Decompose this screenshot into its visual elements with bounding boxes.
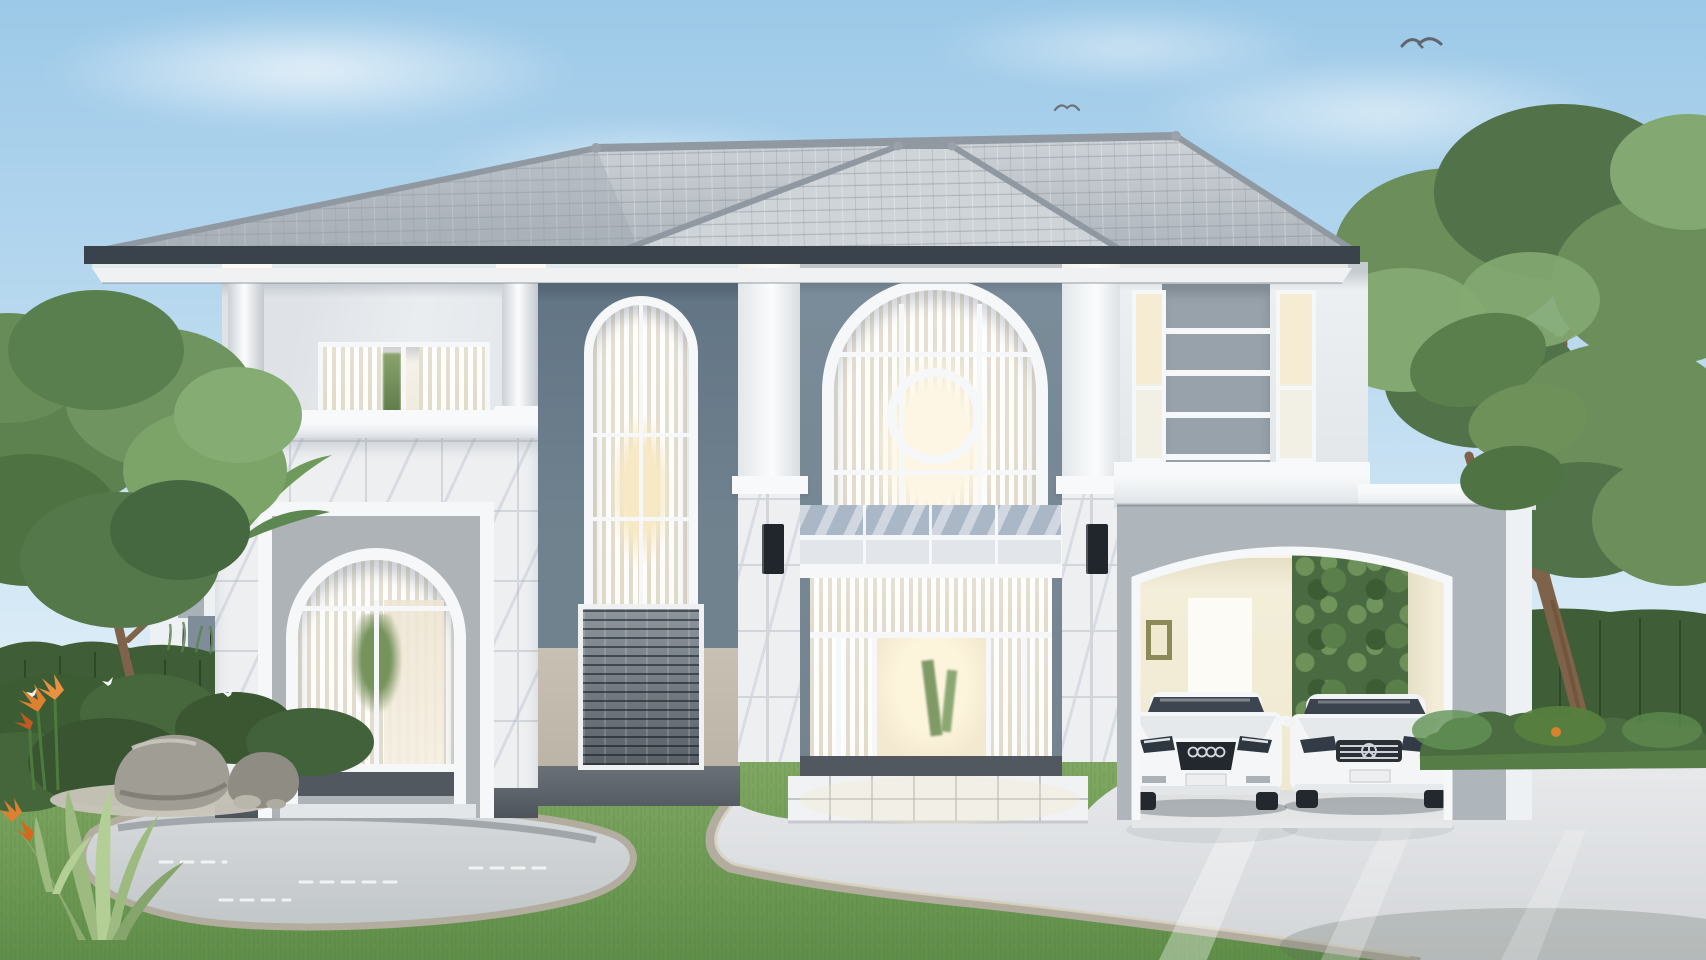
bushes-right bbox=[1412, 706, 1706, 770]
entry-doors-mullion bbox=[836, 638, 841, 756]
roof bbox=[60, 100, 1380, 300]
narrow-window-bar bbox=[1136, 386, 1162, 390]
entry-doors-head bbox=[800, 570, 1062, 578]
entry-doors-mullion bbox=[986, 638, 991, 756]
wall-sconce bbox=[762, 524, 784, 574]
bird bbox=[1398, 30, 1446, 60]
louver-band bbox=[1162, 412, 1270, 418]
marble-balcony-band bbox=[800, 505, 1062, 535]
grand-window-mullion bbox=[834, 352, 1036, 357]
entry-doors-transom bbox=[810, 578, 1052, 632]
entry-doors-mullion bbox=[872, 638, 877, 756]
louver-band bbox=[1162, 454, 1270, 460]
louver-panel bbox=[1162, 284, 1270, 468]
foreground-garden-left bbox=[0, 320, 640, 960]
roof-soffit bbox=[92, 268, 1352, 283]
wall-sconce bbox=[1086, 524, 1108, 574]
louver-band bbox=[1162, 328, 1270, 334]
rendering-scene bbox=[0, 0, 1706, 960]
overhanging-fronds bbox=[1398, 297, 1594, 516]
tower-threshold bbox=[800, 756, 1062, 776]
louver-band bbox=[1162, 370, 1270, 376]
entry-doors-mullion bbox=[1022, 638, 1027, 756]
cloud bbox=[930, 5, 1320, 90]
marble-balcony-band-lower bbox=[800, 540, 1062, 564]
glass-entry-doors bbox=[810, 638, 1052, 756]
pilaster-cap bbox=[732, 476, 808, 494]
grand-window-mullion bbox=[834, 470, 1036, 475]
narrow-window bbox=[1132, 290, 1166, 462]
roof-fascia bbox=[84, 246, 1360, 264]
foreground-right bbox=[1270, 90, 1706, 960]
circle-mullion bbox=[887, 368, 983, 464]
